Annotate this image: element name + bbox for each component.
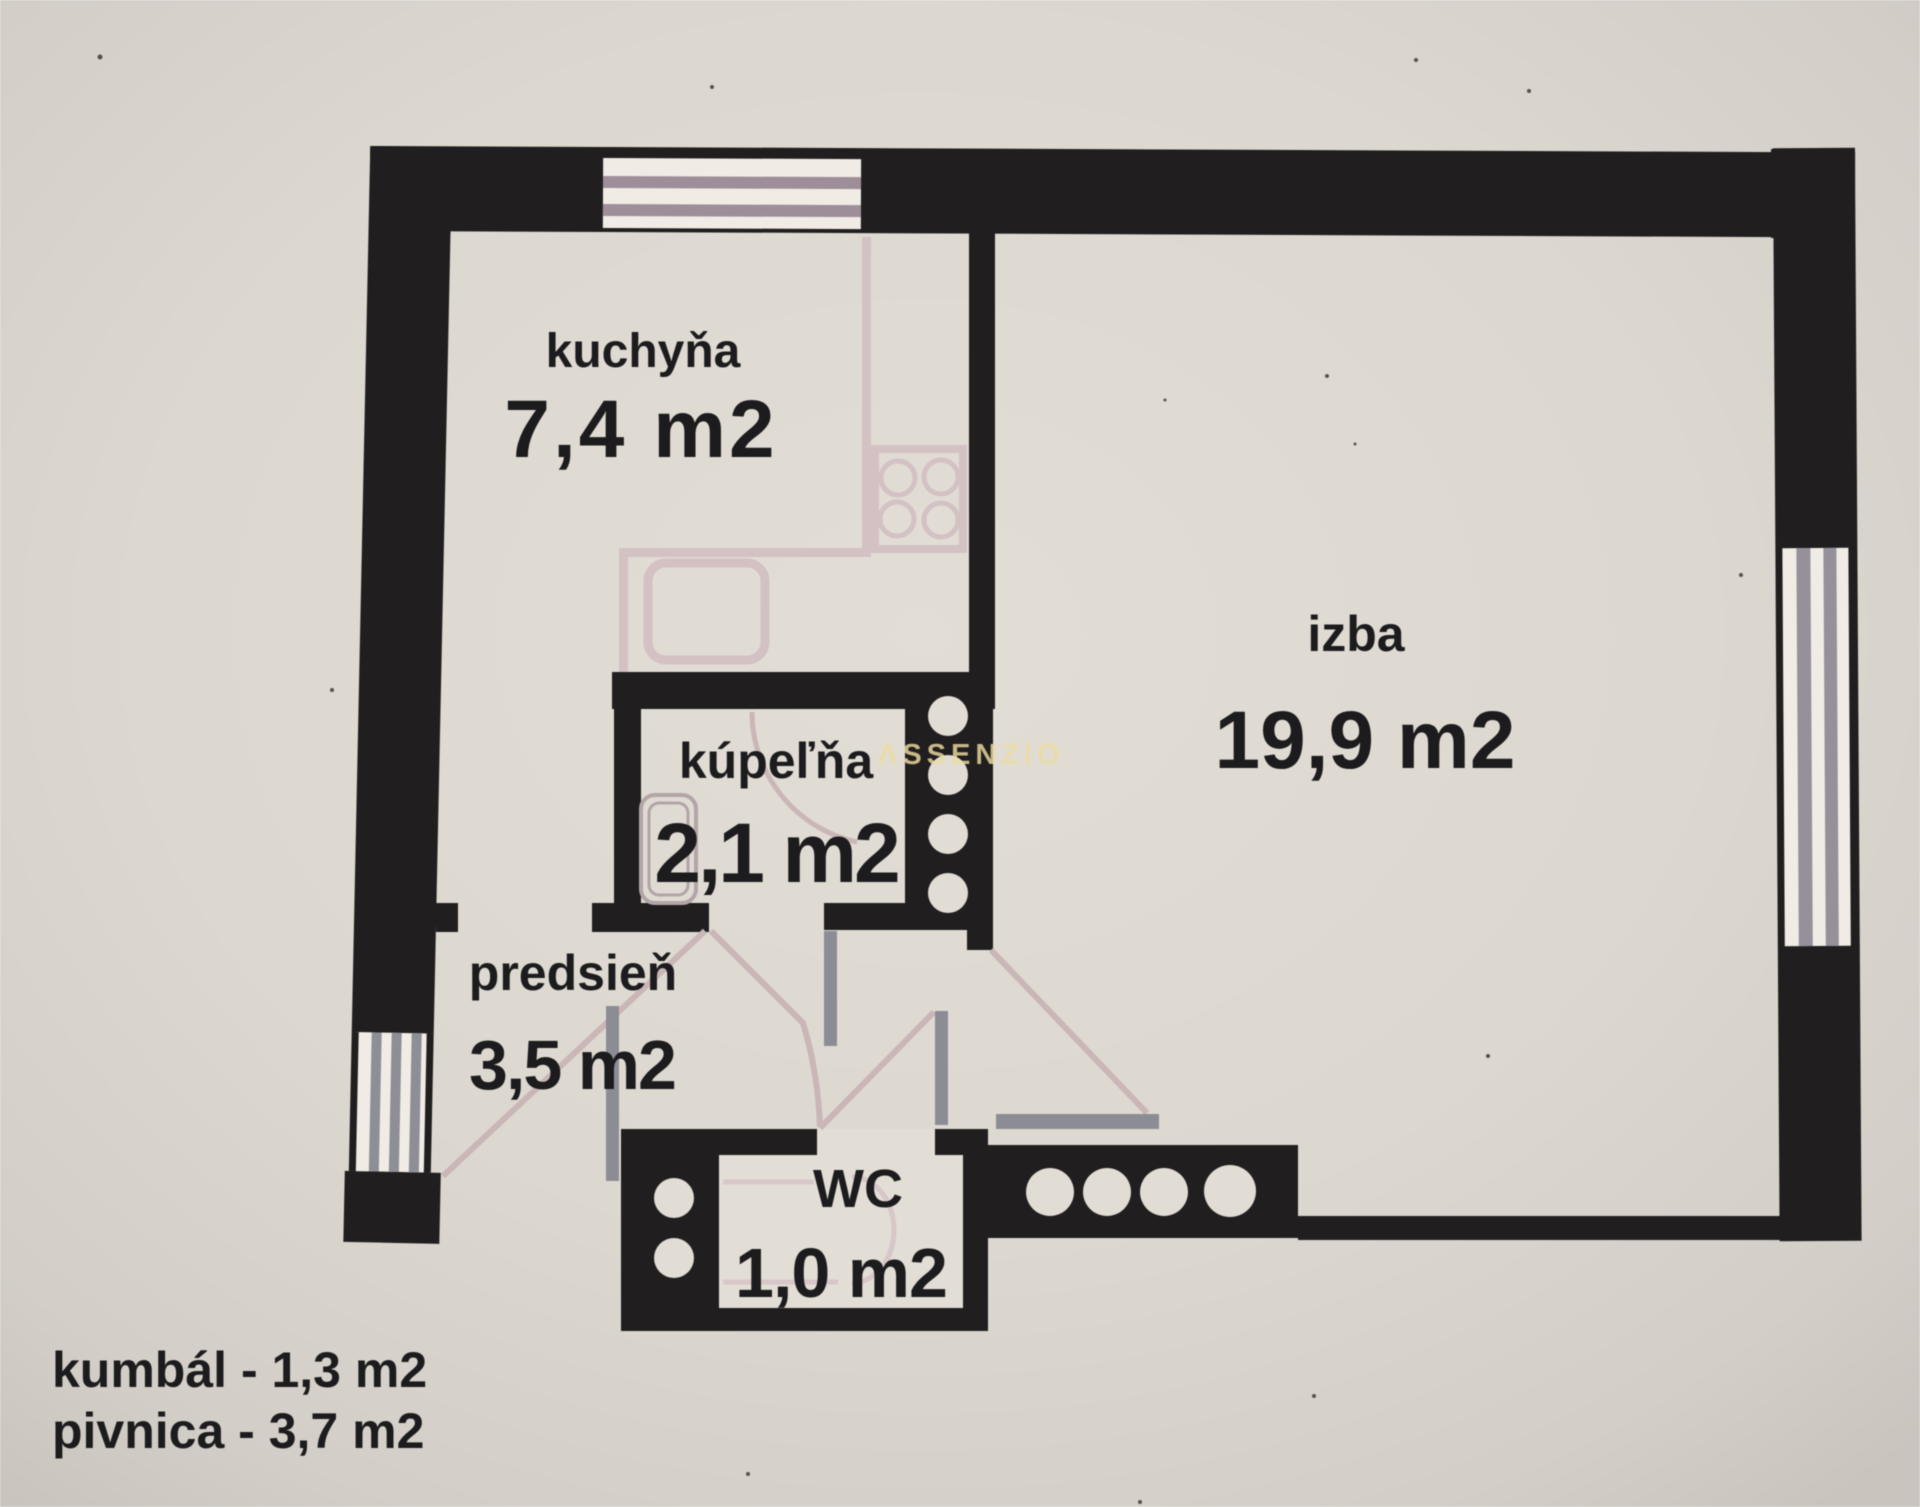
svg-text:19,9 m2: 19,9 m2 [1215, 695, 1516, 786]
svg-text:WC: WC [813, 1159, 903, 1219]
svg-text:kúpeľňa: kúpeľňa [679, 733, 875, 789]
svg-text:2,1 m2: 2,1 m2 [654, 806, 898, 900]
svg-text:predsieň: predsieň [469, 945, 677, 1001]
svg-text:kumbál - 1,3 m2: kumbál - 1,3 m2 [52, 1342, 427, 1398]
svg-text:3,5 m2: 3,5 m2 [469, 1026, 675, 1104]
svg-text:1,0 m2: 1,0 m2 [735, 1234, 947, 1312]
svg-text:ΛSSENZIO: ΛSSENZIO [878, 739, 1065, 771]
svg-text:izba: izba [1307, 606, 1405, 662]
svg-text:7,4 m2: 7,4 m2 [504, 384, 777, 475]
svg-text:pivnica - 3,7 m2: pivnica - 3,7 m2 [52, 1403, 424, 1459]
svg-text:kuchyňa: kuchyňa [546, 325, 741, 378]
